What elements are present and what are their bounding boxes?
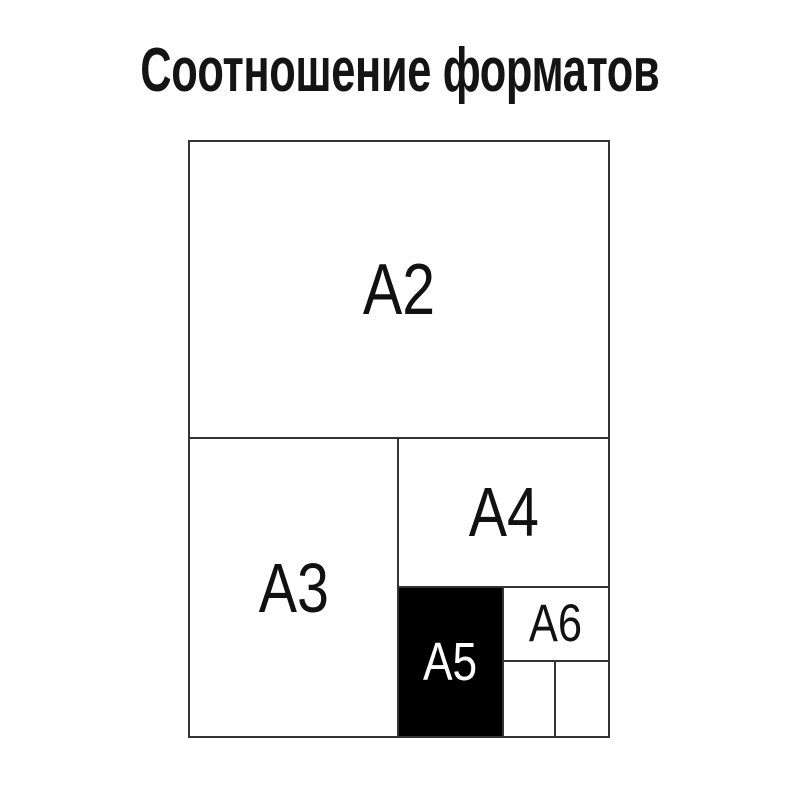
format-label-a3: A3 — [258, 553, 328, 623]
page: Соотношение форматов A2 A3 A4 A5 — [0, 0, 800, 800]
format-cell-a6: A6 — [504, 588, 609, 662]
format-label-a5: A5 — [423, 635, 477, 689]
format-cell-a3: A3 — [190, 439, 399, 736]
diagram-title-text: Соотношение форматов — [140, 40, 659, 102]
diagram-title: Соотношение форматов — [0, 40, 800, 102]
format-label-a6: A6 — [529, 597, 582, 650]
format-cell-small-left — [504, 662, 556, 736]
paper-formats-diagram: A2 A3 A4 A5 A6 — [188, 140, 610, 738]
format-cell-a2: A2 — [190, 142, 608, 439]
right-column: A4 A5 A6 — [399, 439, 608, 736]
sub-format-row — [504, 662, 609, 736]
a6-column: A6 — [504, 588, 609, 737]
format-label-a2: A2 — [363, 254, 435, 326]
format-cell-small-right — [556, 662, 608, 736]
bottom-half: A3 A4 A5 A6 — [190, 439, 608, 736]
format-cell-a4: A4 — [399, 439, 608, 588]
format-cell-a5-highlighted: A5 — [399, 588, 504, 737]
format-label-a4: A4 — [468, 477, 538, 547]
bottom-right-quadrant: A5 A6 — [399, 588, 608, 737]
